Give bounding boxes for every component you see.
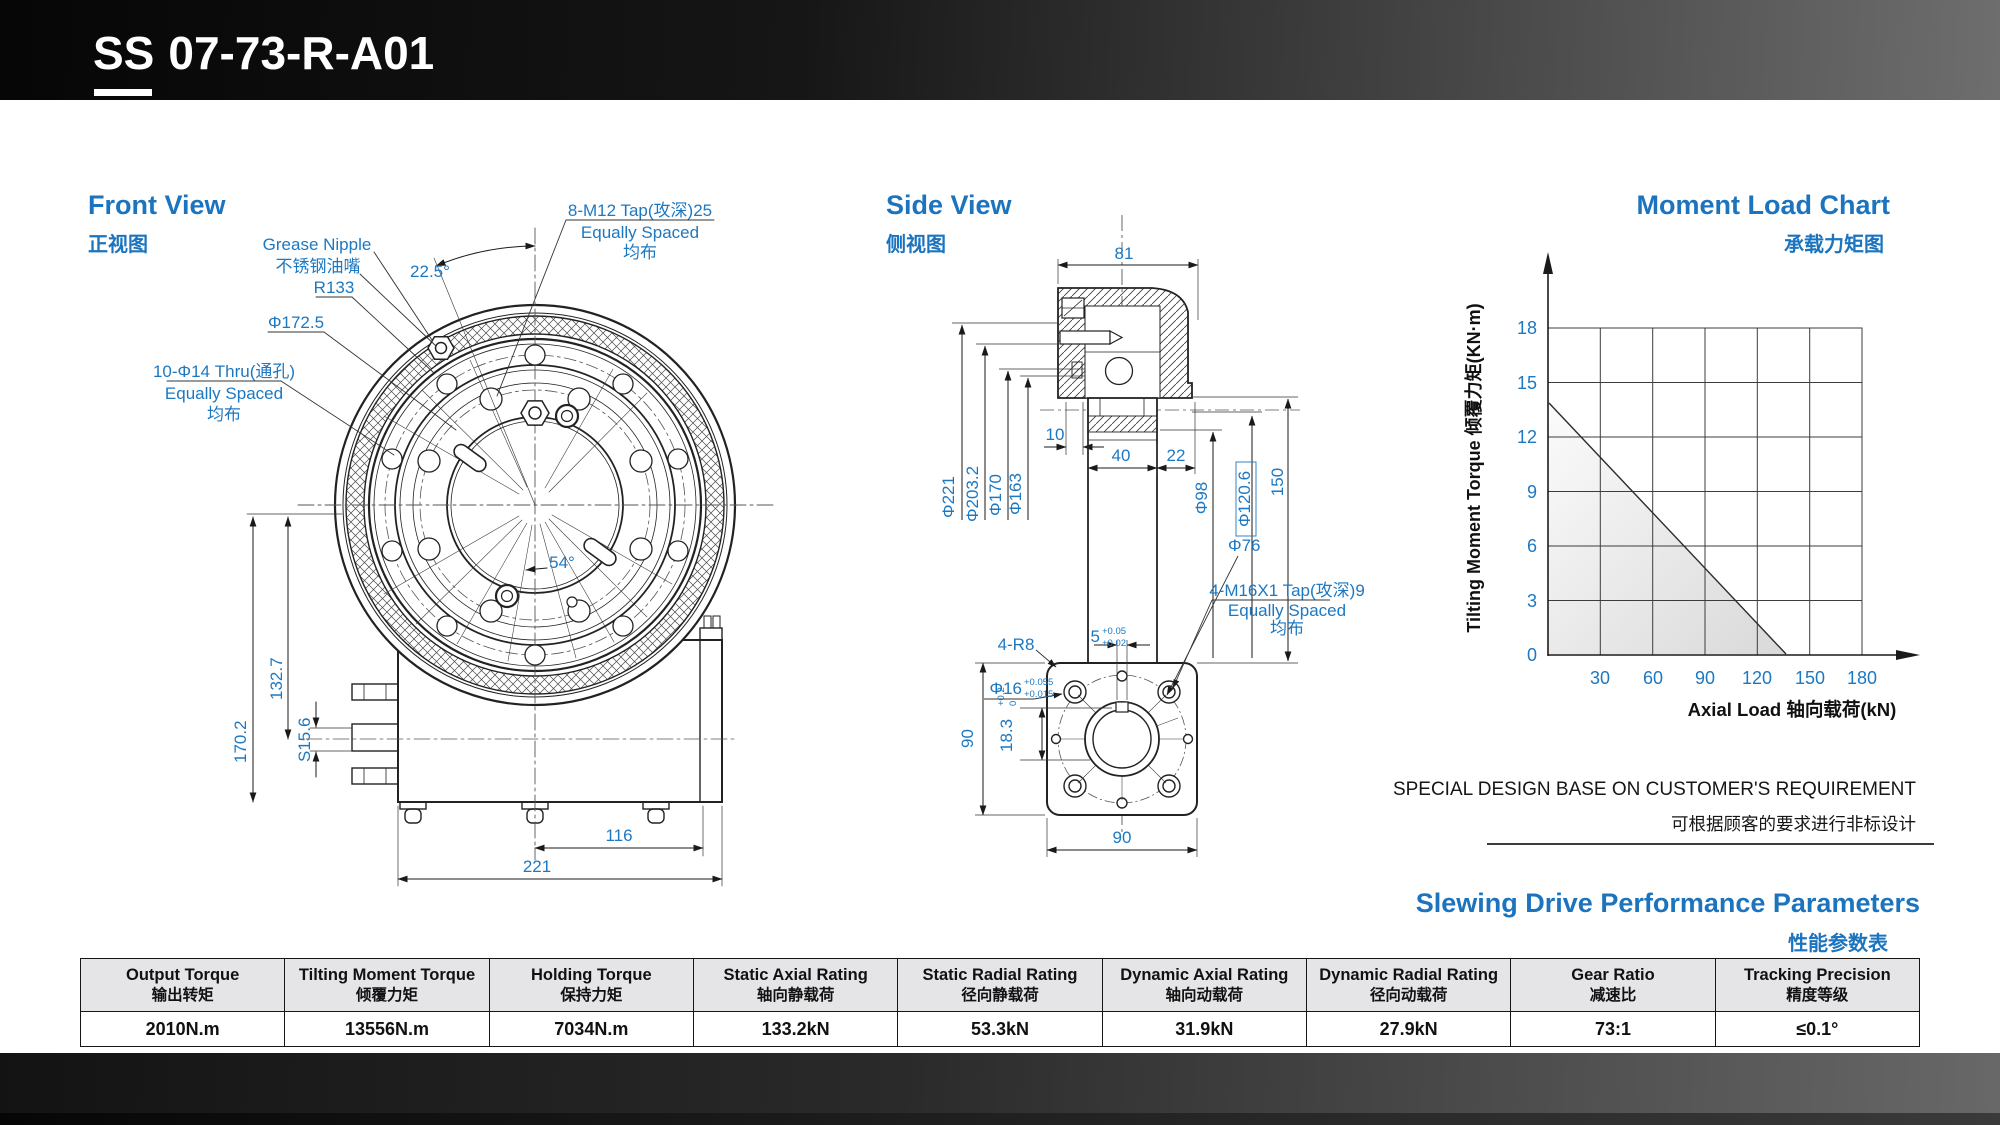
xtick-150: 150	[1795, 668, 1825, 688]
dim-132-7: 132.7	[267, 657, 286, 700]
value-tracking-precision: ≤0.1°	[1715, 1012, 1919, 1047]
grease-nipple-label-zh: 不锈钢油嘴	[276, 257, 361, 276]
dim-r133: R133	[314, 278, 355, 297]
footer-bar-bottom-strip	[0, 1113, 2000, 1125]
dim-40: 40	[1112, 446, 1131, 465]
xtick-120: 120	[1742, 668, 1772, 688]
dim-221: 221	[523, 857, 551, 876]
col-tilting-moment-torque: Tilting Moment Torque倾覆力矩	[285, 959, 489, 1012]
special-design-note-zh: 可根据顾客的要求进行非标设计	[1671, 811, 1916, 836]
grease-nipple-label-en: Grease Nipple	[263, 235, 372, 254]
dim-d76: Φ76	[1228, 536, 1260, 555]
dim-18-3-tol-top: +0.2	[996, 687, 1007, 706]
value-gear-ratio: 73:1	[1511, 1012, 1715, 1047]
m16-label-line1: 4-M16X1 Tap(攻深)9	[1209, 581, 1365, 600]
side-view-drawing: 81 Φ221 Φ203.2 Φ170 Φ163 10 40 22 Φ98 Φ1…	[939, 215, 1365, 857]
m12-label-line1: 8-M12 Tap(攻深)25	[568, 201, 712, 220]
value-static-radial-rating: 53.3kN	[898, 1012, 1102, 1047]
table-header-row: Output Torque输出转矩 Tilting Moment Torque倾…	[81, 959, 1920, 1012]
ytick-3: 3	[1527, 591, 1537, 611]
performance-table: Output Torque输出转矩 Tilting Moment Torque倾…	[80, 958, 1920, 1047]
dim-key-5-tol-top: +0.05	[1102, 626, 1126, 637]
special-design-note-en: SPECIAL DESIGN BASE ON CUSTOMER'S REQUIR…	[1393, 779, 1916, 801]
datasheet-page: SS07-73-R-A01 Front View 正视图 Side View 侧…	[0, 0, 2000, 1125]
dim-150: 150	[1268, 468, 1287, 496]
performance-title: Slewing Drive Performance Parameters	[1416, 888, 1920, 919]
col-output-torque: Output Torque输出转矩	[81, 959, 285, 1012]
front-view-drawing: Grease Nipple 不锈钢油嘴 R133 Φ172.5 22.5° 8-…	[153, 201, 774, 886]
dim-d163: Φ163	[1006, 473, 1025, 515]
value-output-torque: 2010N.m	[81, 1012, 285, 1047]
xtick-180: 180	[1847, 668, 1877, 688]
col-dynamic-radial-rating: Dynamic Radial Rating径向动载荷	[1306, 959, 1510, 1012]
dim-d221: Φ221	[939, 476, 958, 518]
d14-label-line3: 均布	[207, 405, 241, 424]
dim-d120-6: Φ120.6	[1235, 471, 1254, 527]
chart-y-axis-label: Tilting Moment Torque 倾覆力矩(KN·m)	[1463, 303, 1484, 632]
m16-label-line3: 均布	[1270, 619, 1304, 638]
ytick-9: 9	[1527, 482, 1537, 502]
label-4-r8: 4-R8	[998, 635, 1035, 654]
col-dynamic-axial-rating: Dynamic Axial Rating轴向动载荷	[1102, 959, 1306, 1012]
moment-load-chart: 18 15 12 9 6 3 0 30 60 90 120 150 180 Ti…	[1463, 252, 1920, 720]
value-tilting-moment-torque: 13556N.m	[285, 1012, 489, 1047]
col-holding-torque: Holding Torque保持力矩	[489, 959, 693, 1012]
dim-d16-tol-bot: +0.015	[1024, 689, 1053, 700]
m16-label-line2: Equally Spaced	[1228, 601, 1346, 620]
table-value-row: 2010N.m 13556N.m 7034N.m 133.2kN 53.3kN …	[81, 1012, 1920, 1047]
ytick-6: 6	[1527, 536, 1537, 556]
dim-170-2: 170.2	[231, 720, 250, 763]
value-dynamic-axial-rating: 31.9kN	[1102, 1012, 1306, 1047]
dim-d98: Φ98	[1192, 482, 1211, 514]
d14-label-line2: Equally Spaced	[165, 384, 283, 403]
dim-d203-2: Φ203.2	[963, 466, 982, 522]
note-divider	[1487, 843, 1934, 845]
dim-d170: Φ170	[986, 474, 1005, 516]
col-gear-ratio: Gear Ratio减速比	[1511, 959, 1715, 1012]
xtick-30: 30	[1590, 668, 1610, 688]
col-static-axial-rating: Static Axial Rating轴向静载荷	[693, 959, 897, 1012]
dim-angle-54: 54°	[549, 553, 575, 572]
dim-d16-tol-top: +0.055	[1024, 677, 1053, 688]
dim-d172-5: Φ172.5	[268, 313, 324, 332]
ytick-18: 18	[1517, 318, 1537, 338]
dim-81: 81	[1115, 244, 1134, 263]
col-tracking-precision: Tracking Precision精度等级	[1715, 959, 1919, 1012]
dim-key-5-tol-bot: +0.02	[1102, 638, 1126, 649]
chart-x-axis-label: Axial Load 轴向载荷(kN)	[1688, 699, 1897, 720]
dim-22: 22	[1167, 446, 1186, 465]
dim-angle-22-5: 22.5°	[410, 262, 450, 281]
m12-label-line2: Equally Spaced	[581, 223, 699, 242]
dim-18-3: 18.3	[997, 719, 1016, 752]
dim-18-3-tol-bot: 0	[1008, 701, 1019, 706]
d14-label-line1: 10-Φ14 Thru(通孔)	[153, 362, 295, 381]
ytick-15: 15	[1517, 373, 1537, 393]
dim-90-bottom: 90	[1113, 828, 1132, 847]
col-static-radial-rating: Static Radial Rating径向静载荷	[898, 959, 1102, 1012]
value-holding-torque: 7034N.m	[489, 1012, 693, 1047]
m12-label-line3: 均布	[623, 243, 657, 262]
ytick-12: 12	[1517, 427, 1537, 447]
ytick-0: 0	[1527, 645, 1537, 665]
value-dynamic-radial-rating: 27.9kN	[1306, 1012, 1510, 1047]
dim-key-5: 5	[1091, 627, 1100, 646]
dim-s15-6: S15.6	[295, 718, 314, 762]
value-static-axial-rating: 133.2kN	[693, 1012, 897, 1047]
dim-90-left: 90	[958, 729, 977, 748]
dim-10: 10	[1046, 425, 1065, 444]
technical-drawing-canvas: Grease Nipple 不锈钢油嘴 R133 Φ172.5 22.5° 8-…	[0, 0, 2000, 1125]
xtick-90: 90	[1695, 668, 1715, 688]
xtick-60: 60	[1643, 668, 1663, 688]
footer-bar	[0, 1053, 2000, 1113]
dim-116: 116	[605, 826, 632, 845]
performance-subtitle: 性能参数表	[1788, 927, 1888, 956]
